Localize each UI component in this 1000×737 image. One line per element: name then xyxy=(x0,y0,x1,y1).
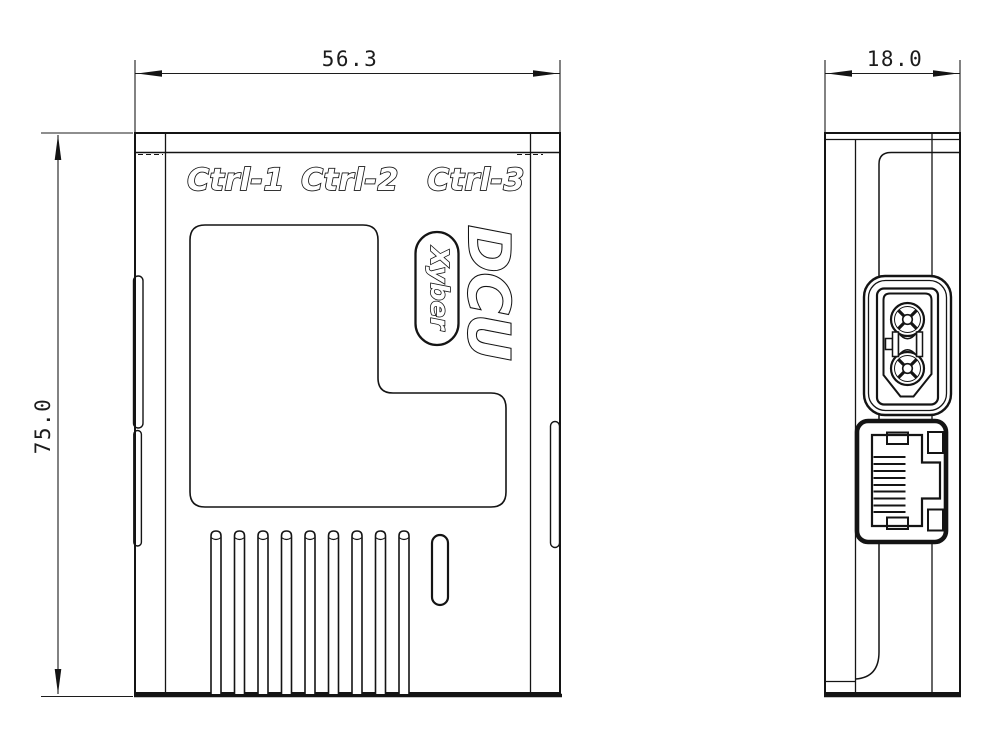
vent-slot xyxy=(352,531,362,694)
vent-slot xyxy=(376,531,386,694)
port-labels: Ctrl-1 Ctrl-2 Ctrl-3 xyxy=(187,163,525,198)
oval-slot xyxy=(432,535,448,605)
side-view xyxy=(824,133,961,696)
arrowhead-left xyxy=(827,70,852,77)
arrowhead-bottom xyxy=(55,669,62,694)
vent-slots xyxy=(211,531,409,694)
port-label-ctrl1: Ctrl-1 xyxy=(187,163,285,198)
front-width-value: 56.3 xyxy=(322,47,379,71)
badge-brand-text: Xyber xyxy=(425,245,454,331)
front-height-value: 75.0 xyxy=(31,398,55,455)
arrowhead-top xyxy=(55,135,62,160)
vent-slot xyxy=(235,531,245,694)
arrowhead-right xyxy=(933,70,958,77)
device-drawing: 56.3 18.0 75.0 xyxy=(0,0,1000,737)
technical-drawing-page: 56.3 18.0 75.0 xyxy=(0,0,1000,737)
dcu-logo-text: DCU xyxy=(455,225,521,360)
brand-badge: Xyber xyxy=(416,232,459,345)
port-label-ctrl3: Ctrl-3 xyxy=(427,163,525,198)
vent-slot xyxy=(329,531,339,694)
port-label-ctrl2: Ctrl-2 xyxy=(301,163,399,198)
vent-slot xyxy=(258,531,268,694)
arrowhead-left xyxy=(137,70,162,77)
front-view: Ctrl-1 Ctrl-2 Ctrl-3 DCU Xyber xyxy=(134,133,563,696)
vent-slot xyxy=(211,531,221,694)
vent-slot xyxy=(282,531,292,694)
side-depth-value: 18.0 xyxy=(867,47,924,71)
vent-slot xyxy=(399,531,409,694)
xt30-power-connector xyxy=(864,276,951,415)
vent-slot xyxy=(305,531,315,694)
arrowhead-right xyxy=(533,70,558,77)
rj45-ethernet-port xyxy=(857,421,946,542)
